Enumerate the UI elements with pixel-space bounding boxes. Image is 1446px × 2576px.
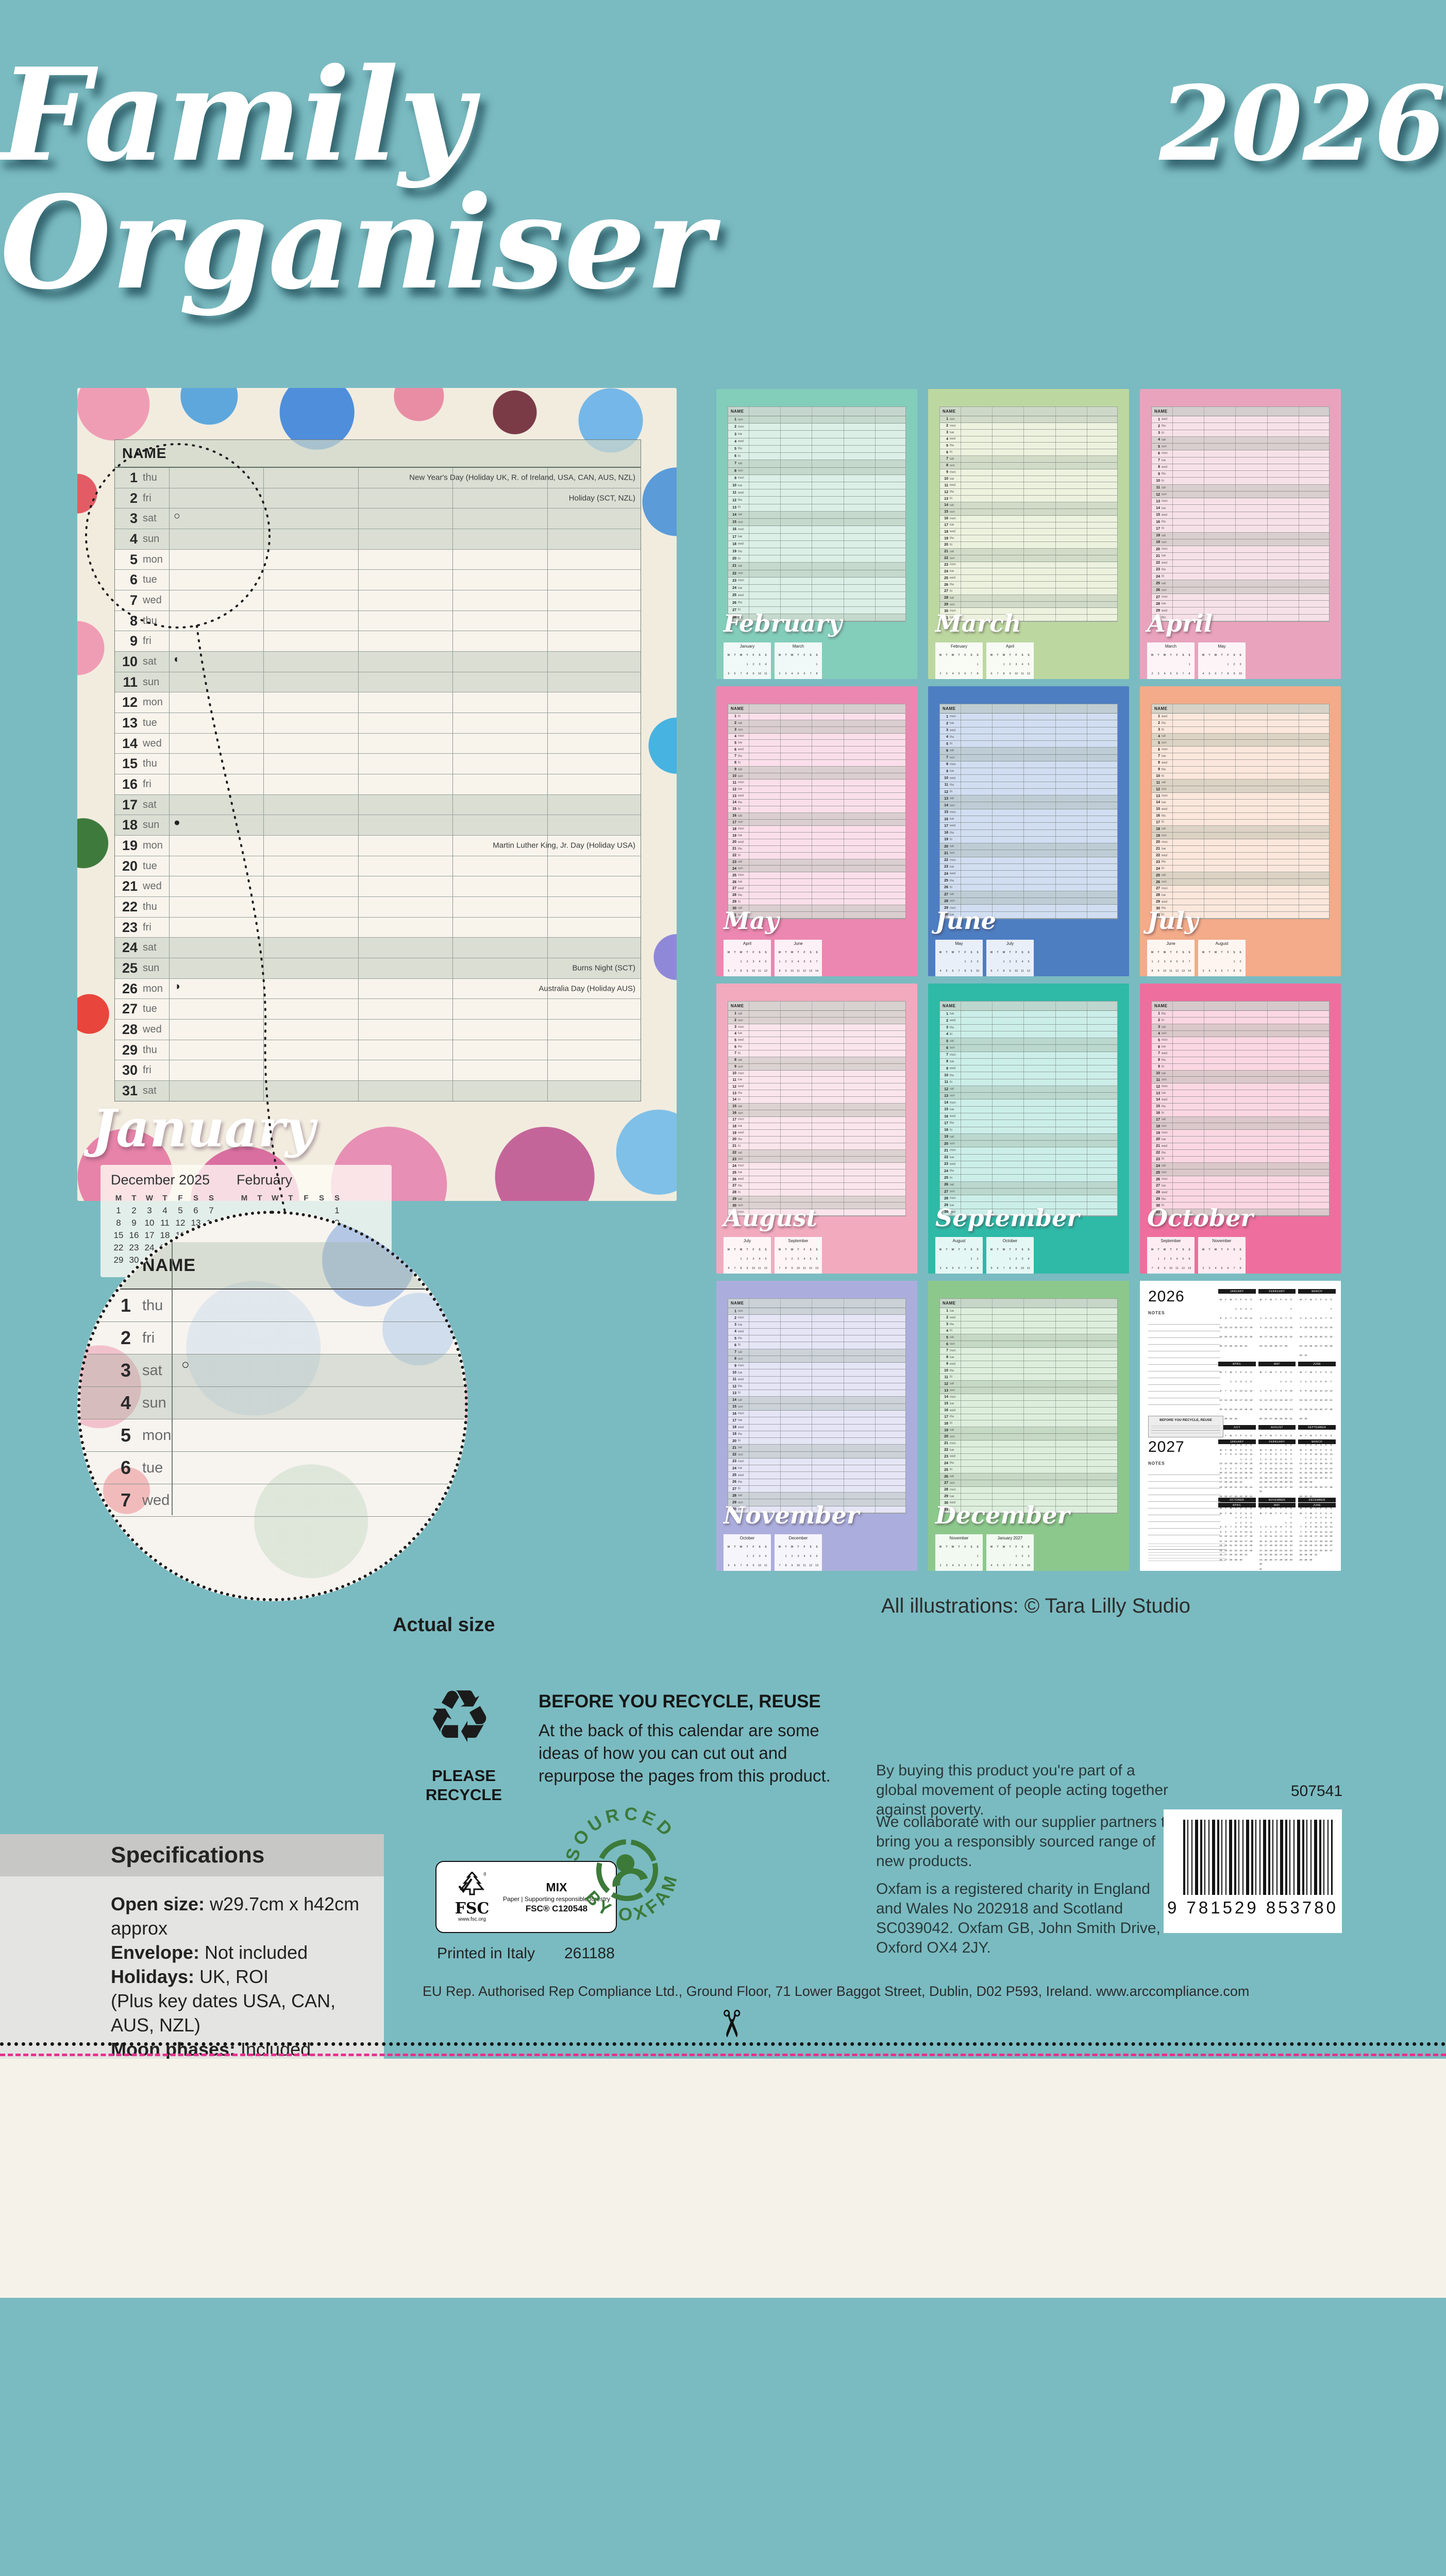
mini-calendar-week: 1 <box>937 658 981 668</box>
mini-calendar: JANUARYMTWTFSS12345678910111213141516171… <box>1218 1289 1256 1359</box>
thumbnail-day-row: 9fri <box>1152 1064 1329 1071</box>
day-number: 5 <box>115 552 138 568</box>
mini-calendar-weekday-row: MTWTFSS <box>777 649 820 658</box>
holiday-note: Burns Night (SCT) <box>572 964 635 973</box>
mini-calendar-weekday-row: MTWTFSS <box>726 946 769 956</box>
thumbnail-day-row: 29thu <box>1152 1196 1329 1203</box>
printed-in-label: Printed in Italy <box>437 1945 535 1962</box>
mini-calendar-week: 1234567 <box>1298 1453 1336 1463</box>
thumbnail-day-row: 9sun <box>728 1064 905 1071</box>
mini-calendar-week: 1234567 <box>111 1205 219 1217</box>
thumbnail-day-row: 10fri <box>1152 478 1329 484</box>
calendar-back-cover: { "title": {"main": "Family Organiser", … <box>0 0 1446 2298</box>
mini-calendar-weekday-row: MTWTFSS <box>1149 649 1192 658</box>
svg-text:SOURCED: SOURCED <box>552 1792 681 1867</box>
month-thumbnail: NAME1tue2wed3thu4fri5sat6sun7mon8tue9wed… <box>928 984 1129 1274</box>
thumbnail-day-row: 14sat <box>728 512 905 519</box>
mini-calendar-weekday-row: MTWTFSS <box>1218 1294 1256 1303</box>
mini-calendar-title: January <box>726 644 769 649</box>
mini-calendar-week: 9101112131415 <box>937 677 981 679</box>
thumbnail-day-row: 14wed <box>1152 1097 1329 1104</box>
mini-calendar-week: 123 <box>1258 1376 1296 1385</box>
thumbnail-day-row: 14mon <box>940 1394 1117 1401</box>
specification-line: Open size: w29.7cm x h42cm approx <box>111 1892 374 1940</box>
mini-calendar-week: 1234567 <box>1149 956 1192 965</box>
thumbnail-day-row: 23fri <box>1152 1157 1329 1163</box>
fsc-tree-icon: ® <box>458 1872 486 1899</box>
detail-day-rows: 1thu2fri3sat○4sun5mon6tue7wed <box>80 1290 465 1517</box>
day-number: 23 <box>115 920 138 936</box>
detail-day-row: 2fri <box>80 1322 465 1354</box>
thumbnail-day-row: 20fri <box>940 542 1117 549</box>
thumbnail-day-row: 6thu <box>728 1044 905 1050</box>
thumbnail-day-row: 1thu <box>1152 1011 1329 1018</box>
mini-calendar-week: 10111213141516 <box>1258 1535 1296 1545</box>
oxfam-statement-2: We collaborate with our supplier partner… <box>876 1812 1175 1871</box>
thumbnail-day-row: 25sun <box>1152 1170 1329 1176</box>
month-thumbnail: NAME1wed2thu3fri4sat5sun6mon7tue8wed9thu… <box>1140 686 1341 976</box>
thumbnail-day-row: 1sun <box>728 1308 905 1315</box>
thumbnail-day-row: 28fri <box>728 1190 905 1196</box>
mini-calendar-weekday-row: MTWTFSS <box>1149 946 1192 956</box>
detail-day-row: 5mon <box>80 1419 465 1452</box>
thumbnail-day-row: 19sun <box>1152 833 1329 839</box>
thumbnail-day-row: 8thu <box>1152 1057 1329 1064</box>
thumbnail-day-row: 20fri <box>728 1438 905 1445</box>
thumbnail-day-row: 22mon <box>940 857 1117 864</box>
day-number: 19 <box>115 838 138 854</box>
mini-calendar: NovemberMTWTFSS1234567891011121314151617… <box>935 1534 983 1571</box>
thumbnail-day-row: 9wed <box>940 1065 1117 1072</box>
mini-calendar-title: AUGUST <box>1258 1425 1296 1430</box>
recycle-note-box: BEFORE YOU RECYCLE, REUSE <box>1148 1416 1223 1437</box>
day-of-week: tue <box>142 1460 163 1477</box>
thumbnail-day-row: 15sun <box>940 509 1117 516</box>
thumbnail-day-row: 5sun <box>1152 444 1329 450</box>
mini-calendar-week: 13141516171819 <box>988 677 1032 679</box>
thumbnail-day-row: 7sun <box>940 755 1117 761</box>
mini-calendar-week: 12345 <box>988 658 1032 668</box>
thumbnail-day-row: 9tue <box>940 768 1117 775</box>
mini-calendar-week: 15161718192021 <box>1149 974 1192 976</box>
thumbnail-day-rows: 1sun2mon3tue4wed5thu6fri7sat8sun9mon10tu… <box>728 416 905 621</box>
thumbnail-day-row: 10tue <box>728 482 905 489</box>
thumbnail-day-row: 20fri <box>728 555 905 563</box>
thumbnail-day-row: 23sun <box>728 1157 905 1163</box>
mini-calendar: JanuaryMTWTFSS12345678910111213141516171… <box>724 642 771 679</box>
mini-calendar-weekday-row: MTWTFSS <box>1218 1430 1256 1439</box>
thumbnail-day-row: 25fri <box>940 1175 1117 1181</box>
day-of-week: fri <box>143 493 152 504</box>
scissors-icon: ✂ <box>712 2008 749 2039</box>
mini-calendar-title: April <box>726 941 769 946</box>
thumbnail-day-row: 6fri <box>728 1342 905 1349</box>
mini-calendar: MARCHMTWTFSS1234567891011121314151617181… <box>1298 1289 1336 1359</box>
mini-calendar-week: 45678910 <box>1218 1463 1256 1472</box>
mini-calendar-title: JUNE <box>1298 1362 1336 1366</box>
thumbnail-day-row: 18fri <box>940 1420 1117 1427</box>
mini-calendar-weekday-row: MTWTFSS <box>777 1541 820 1550</box>
mini-calendar-week: 3031 <box>1298 1349 1336 1359</box>
mini-calendar-title: November <box>1200 1239 1243 1243</box>
thumbnail-day-row: 20sat <box>940 843 1117 850</box>
day-of-week: thu <box>142 1297 163 1314</box>
thumbnail-day-row: 18fri <box>940 1127 1117 1134</box>
thumbnail-day-row: 24mon <box>728 1163 905 1170</box>
mini-months-2027: JANUARYMTWTFSS12345678910111213141516171… <box>1218 1439 1336 1571</box>
day-of-week: mon <box>143 697 163 708</box>
mini-calendar-week: 27282930 <box>1218 1413 1256 1422</box>
mini-calendar-week: 11121314151617 <box>1218 1472 1256 1481</box>
thumbnail-day-row: 8tue <box>940 1354 1117 1361</box>
mini-calendar-weekday-row: MTWTFSS <box>1298 1444 1336 1453</box>
thumbnail-day-row: 2wed <box>940 1315 1117 1321</box>
mini-calendar: MarchMTWTFSS1234567891011121314151617181… <box>775 642 822 679</box>
mini-calendar: AugustMTWTFSS123456789101112131415161718… <box>935 1237 983 1274</box>
thumbnail-day-row: 24sun <box>728 866 905 872</box>
thumbnail-day-row: 14fri <box>728 1097 905 1104</box>
mini-calendar: AprilMTWTFSS1234567891011121314151617181… <box>986 642 1034 679</box>
mini-calendar-week: 18192021222324 <box>1258 1403 1296 1413</box>
mini-calendar-week: 12345 <box>726 956 769 965</box>
specifications-box: Specifications Open size: w29.7cm x h42c… <box>0 1834 384 2076</box>
mini-calendar-week: 12131415161718 <box>1218 1321 1256 1331</box>
mini-calendar-week: 282930 <box>1298 1554 1336 1563</box>
mini-calendar: JuneMTWTFSS12345678910111213141516171819… <box>775 940 822 976</box>
mini-calendar-week: 2930 <box>1298 1413 1336 1422</box>
mini-calendar-weekday-row: MTWTFSS <box>237 1192 345 1205</box>
mini-calendar-week: 13141516171819 <box>726 1272 769 1274</box>
thumbnail-day-row: 13sun <box>940 1093 1117 1099</box>
moon-phase-icon: ● <box>174 817 180 829</box>
thumbnail-day-row: 6fri <box>728 453 905 460</box>
mini-calendar: JUNEMTWTFSS12345678910111213141516171819… <box>1298 1503 1336 1571</box>
mini-calendar-title: JULY <box>1218 1425 1256 1430</box>
thumbnail-day-row: 10thu <box>940 1368 1117 1375</box>
thumbnail-day-row: 12thu <box>728 497 905 504</box>
thumbnail-day-row: 19sat <box>940 1134 1117 1141</box>
thumbnail-day-row: 26thu <box>728 599 905 606</box>
day-of-week: fri <box>143 635 152 647</box>
thumbnail-day-row: 7tue <box>1152 753 1329 760</box>
thumbnail-day-row: 12sun <box>1152 492 1329 498</box>
thumbnail-day-row: 29fri <box>728 899 905 906</box>
mini-calendar-week: 23242526272829 <box>1298 1340 1336 1349</box>
day-number: 21 <box>115 878 138 894</box>
thumbnail-day-row: 18thu <box>940 830 1117 837</box>
mini-calendar-week: 9101112131415 <box>777 677 820 679</box>
thumbnail-day-row: 1tue <box>940 1011 1117 1018</box>
mini-calendar: FebruaryMTWTFSS1234567891011121314151617… <box>935 642 983 679</box>
calendar-day-row: 8thu <box>115 611 641 632</box>
mini-calendar-week: 123 <box>1200 658 1243 668</box>
mini-calendar-week: 16171819202122 <box>1298 1331 1336 1340</box>
day-of-week: sat <box>143 513 157 524</box>
thumbnail-day-row: 11sat <box>1152 485 1329 492</box>
thumbnail-name-header: NAME <box>728 704 905 714</box>
thumbnail-day-row: 15tue <box>940 1107 1117 1113</box>
thumbnail-day-row: 29sun <box>940 602 1117 608</box>
thumbnail-day-row: 4sat <box>1152 437 1329 444</box>
thumbnail-calendar-area: NAME1thu2fri3sat4sun5mon6tue7wed8thu9fri… <box>1151 1001 1330 1216</box>
mini-calendar-title: November <box>937 1536 981 1540</box>
thumbnail-day-row: 7sat <box>940 456 1117 463</box>
thumbnail-day-row: 16sat <box>728 813 905 820</box>
mini-calendar-week: 13141516171819 <box>1218 1394 1256 1403</box>
thumbnail-day-row: 27wed <box>728 886 905 892</box>
mini-calendar-week: 891011121314 <box>1258 1463 1296 1472</box>
thumbnail-name-header: NAME <box>1152 407 1329 416</box>
thumbnail-day-row: 27fri <box>728 1486 905 1493</box>
mini-calendar-week: 1234 <box>1218 1303 1256 1312</box>
mini-calendar-weekday-row: MTWTFSS <box>1258 1294 1296 1303</box>
mini-calendar: JANUARYMTWTFSS12345678910111213141516171… <box>1218 1439 1256 1500</box>
mini-calendar-weekday-row: MTWTFSS <box>1218 1366 1256 1376</box>
thumbnail-day-row: 29wed <box>1152 899 1329 906</box>
thumbnail-day-row: 12thu <box>940 489 1117 496</box>
day-number: 3 <box>80 1360 131 1381</box>
thumbnail-day-row: 10thu <box>940 1072 1117 1079</box>
thumbnail-day-row: 13sat <box>940 795 1117 802</box>
thumbnail-day-row: 14thu <box>728 800 905 806</box>
mini-calendar-weekday-row: MTWTFSS <box>988 1244 1032 1253</box>
mini-calendar-week: 25262728293031 <box>1258 1413 1296 1422</box>
eu-rep-line: EU Rep. Authorised Rep Compliance Ltd., … <box>423 1984 1249 1999</box>
thumbnail-day-row: 6wed <box>728 747 905 753</box>
day-number: 5 <box>80 1425 131 1446</box>
year-planner-footnote-lines <box>1148 1541 1225 1563</box>
thumbnail-day-row: 14sat <box>940 502 1117 509</box>
mini-calendar-weekday-row: MTWTFSS <box>937 1244 981 1253</box>
day-of-week: sun <box>143 676 159 688</box>
thumbnail-day-row: 20sun <box>940 1141 1117 1147</box>
thumbnail-day-row: 19mon <box>1152 1130 1329 1137</box>
thumbnail-day-row: 1wed <box>1152 714 1329 720</box>
mini-calendar: FEBRUARYMTWTFSS1234567891011121314151617… <box>1258 1289 1296 1359</box>
mini-calendar-week: 891011121314 <box>1298 1385 1336 1394</box>
thumbnail-day-row: 21wed <box>1152 1143 1329 1150</box>
thumbnail-day-row: 17tue <box>728 534 905 541</box>
mini-calendar: MAYMTWTFSS123456789101112131415161718192… <box>1258 1362 1296 1422</box>
thumbnail-day-row: 23thu <box>1152 567 1329 573</box>
thumbnail-day-row: 14tue <box>1152 505 1329 512</box>
calendar-day-row: 7wed <box>115 590 641 611</box>
moon-phase-icon: ○ <box>181 1357 190 1372</box>
thumbnail-day-row: 25mon <box>728 872 905 879</box>
title-year: 2026 <box>1159 73 1446 176</box>
thumbnail-day-row: 22sun <box>728 570 905 578</box>
thumbnail-day-row: 8sun <box>728 1356 905 1363</box>
svg-text:®: ® <box>483 1872 486 1877</box>
thumbnail-day-row: 17wed <box>940 823 1117 829</box>
thumbnail-day-row: 8sat <box>728 1057 905 1064</box>
mini-calendar-week: 11121314151617 <box>988 1569 1032 1571</box>
thumbnail-day-row: 25wed <box>728 1472 905 1479</box>
thumbnail-day-row: 24fri <box>1152 573 1329 580</box>
mini-calendar-weekday-row: MTWTFSS <box>988 649 1032 658</box>
thumbnail-day-row: 1tue <box>940 1308 1117 1315</box>
thumbnail-day-row: 24tue <box>728 585 905 592</box>
mini-calendar-title: July <box>988 941 1032 946</box>
mini-calendar-weekday-row: MTWTFSS <box>988 946 1032 956</box>
mini-calendar-week: 22232425262728 <box>1298 1403 1336 1413</box>
detail-day-row: 4sun <box>80 1387 465 1419</box>
day-of-week: sun <box>142 1395 166 1412</box>
calendar-day-row: 14wed <box>115 734 641 754</box>
thumbnail-day-rows: 1thu2fri3sat4sun5mon6tue7wed8thu9fri10sa… <box>1152 1011 1329 1216</box>
thumbnail-day-row: 11wed <box>728 1377 905 1383</box>
day-number: 26 <box>115 981 138 997</box>
day-of-week: thu <box>143 615 157 627</box>
mini-calendar-week: 293031 <box>1298 1490 1336 1500</box>
thumbnail-day-row: 1fri <box>728 714 905 720</box>
thumbnail-day-row: 5mon <box>1152 1037 1329 1044</box>
spec-value: Not included <box>205 1942 308 1963</box>
mini-calendar-week: 12131415161718 <box>988 1272 1032 1274</box>
mini-calendar: OctoberMTWTFSS12345678910111213141516171… <box>986 1237 1034 1274</box>
thumbnail-month-label: April <box>1147 612 1213 635</box>
fold-dashed-line <box>0 2054 1446 2056</box>
thumbnail-day-row: 17tue <box>940 522 1117 529</box>
thumbnail-day-row: 7tue <box>1152 457 1329 464</box>
thumbnail-day-row: 2thu <box>1152 423 1329 430</box>
calendar-day-row: 13tue <box>115 713 641 734</box>
thumbnail-month-label: December <box>935 1503 1070 1527</box>
mini-calendar-week: 9101112131415 <box>1298 1321 1336 1331</box>
calendar-day-row: 25sunBurns Night (SCT) <box>115 958 641 979</box>
thumbnail-day-row: 26fri <box>940 885 1117 891</box>
mini-calendar-weekday-row: MTWTFSS <box>1298 1430 1336 1439</box>
thumbnail-day-row: 12sat <box>940 1086 1117 1093</box>
thumbnail-day-row: 13wed <box>728 793 905 800</box>
mini-calendar-title: MAY <box>1258 1503 1296 1507</box>
mini-calendar-week: 11121314151617 <box>1258 1394 1296 1403</box>
mini-calendar-weekday-row: MTWTFSS <box>1298 1507 1336 1517</box>
thumbnail-day-row: 29sat <box>728 1196 905 1203</box>
thumbnail-day-row: 3sun <box>728 727 905 734</box>
day-of-week: wed <box>143 880 162 892</box>
thumbnail-day-row: 6mon <box>1152 747 1329 753</box>
barcode-digits: 9 781529 853780 <box>1164 1898 1342 1918</box>
mini-calendar-week: 3456789 <box>937 1262 981 1272</box>
mini-calendar-week: 9101112131415 <box>1258 1321 1296 1331</box>
thumbnail-name-header: NAME <box>728 1002 905 1011</box>
fsc-logo: ® FSC www.fsc.org <box>442 1872 502 1922</box>
thumbnail-day-row: 13fri <box>940 496 1117 502</box>
thumbnail-day-row: 23wed <box>940 1161 1117 1168</box>
thumbnail-day-row: 2fri <box>1152 1018 1329 1024</box>
mini-calendar-weekday-row: MTWTFSS <box>777 946 820 956</box>
thumbnail-day-row: 11thu <box>940 782 1117 789</box>
thumbnail-day-row: 4wed <box>940 436 1117 443</box>
thumbnail-day-row: 18wed <box>940 529 1117 535</box>
spec-label: Envelope: <box>111 1942 205 1963</box>
day-number: 18 <box>115 817 138 833</box>
thumbnail-day-row: 27tue <box>1152 1183 1329 1190</box>
mini-calendar-week: 123 <box>1218 1453 1256 1463</box>
calendar-day-row: 24sat <box>115 938 641 958</box>
mini-calendar-title: MARCH <box>1298 1289 1336 1294</box>
thumbnail-day-row: 4fri <box>940 1328 1117 1335</box>
mini-calendar-weekday-row: MTWTFSS <box>937 649 981 658</box>
flap-area <box>0 2059 1446 2298</box>
thumbnail-day-row: 6mon <box>1152 450 1329 457</box>
calendar-day-row: 27tue <box>115 999 641 1020</box>
day-number: 9 <box>115 633 138 649</box>
thumbnail-month-label: May <box>724 909 779 933</box>
thumbnail-day-row: 25wed <box>940 575 1117 582</box>
calendar-day-row: 3sat○ <box>115 509 641 529</box>
moon-phase-icon: ○ <box>174 510 180 522</box>
day-of-week: fri <box>142 1330 155 1347</box>
thumbnail-mini-calendars: NovemberMTWTFSS1234567891011121314151617… <box>935 1534 1034 1571</box>
calendar-day-row: 5mon <box>115 550 641 570</box>
thumbnail-day-row: 18sat <box>1152 533 1329 539</box>
mini-calendar-week: 1234 <box>726 658 769 668</box>
mini-calendar-week: 123456 <box>777 1253 820 1262</box>
thumbnail-day-rows: 1tue2wed3thu4fri5sat6sun7mon8tue9wed10th… <box>940 1011 1117 1216</box>
mini-calendar-week: 18192021222324 <box>1218 1481 1256 1490</box>
day-number: 10 <box>115 654 138 670</box>
thumbnail-day-row: 9mon <box>940 469 1117 476</box>
detail-day-row: 3sat○ <box>80 1354 465 1387</box>
thumbnail-day-row: 22tue <box>940 1155 1117 1161</box>
mini-calendar-week: 1234 <box>1218 1517 1256 1526</box>
thumbnail-calendar-area: NAME1sun2mon3tue4wed5thu6fri7sat8sun9mon… <box>728 1298 906 1514</box>
thumbnail-day-row: 13sun <box>940 1387 1117 1394</box>
day-of-week: sun <box>143 819 159 831</box>
detail-table: NAME 1thu2fri3sat○4sun5mon6tue7wed <box>80 1242 465 1517</box>
thumbnail-day-row: 1sun <box>940 416 1117 423</box>
mini-calendar: AprilMTWTFSS1234567891011121314151617181… <box>724 940 771 976</box>
mini-calendar-week: 78910111213 <box>1149 1262 1192 1272</box>
calendar-day-row: 11sun <box>115 672 641 693</box>
thumbnail-day-row: 4sun <box>1152 1031 1329 1038</box>
thumbnail-day-row: 5thu <box>728 1335 905 1342</box>
thumbnail-day-row: 26thu <box>940 582 1117 588</box>
thumbnail-day-row: 6sun <box>940 1045 1117 1052</box>
detail-column-divider <box>172 1242 173 1515</box>
mini-calendar-week: 123456 <box>1298 1517 1336 1526</box>
thumbnail-day-rows: 1sun2mon3tue4wed5thu6fri7sat8sun9mon10tu… <box>940 416 1117 621</box>
spec-value: UK, ROI <box>199 1966 268 1987</box>
thumbnail-day-row: 8wed <box>1152 760 1329 767</box>
thumbnail-day-row: 26sat <box>940 1473 1117 1480</box>
thumbnail-day-row: 21mon <box>940 1147 1117 1154</box>
mini-calendar-week: 45678910 <box>937 965 981 974</box>
mini-calendar-week: 567891011 <box>726 1560 769 1569</box>
thumbnail-day-row: 19sat <box>940 1427 1117 1434</box>
thumbnail-day-row: 14sat <box>728 1397 905 1403</box>
day-of-week: tue <box>143 860 157 872</box>
thumbnail-day-row: 12fri <box>940 789 1117 795</box>
thumbnail-mini-calendars: MayMTWTFSS123456789101112131415161718192… <box>935 940 1034 976</box>
thumbnail-day-row: 22sun <box>940 555 1117 562</box>
thumbnail-calendar-area: NAME1tue2wed3thu4fri5sat6sun7mon8tue9wed… <box>939 1298 1118 1514</box>
thumbnail-day-row: 18sun <box>1152 1123 1329 1130</box>
day-of-week: sat <box>143 1085 157 1097</box>
mini-calendar-week: 2345678 <box>937 1560 981 1569</box>
mini-calendar-week: 1234 <box>988 1253 1032 1262</box>
thumbnail-day-row: 16thu <box>1152 813 1329 820</box>
barcode-bars <box>1183 1820 1333 1895</box>
oxfam-charity-info: Oxfam is a registered charity in England… <box>876 1879 1175 1958</box>
thumbnail-day-row: 11mon <box>728 779 905 786</box>
thumbnail-day-row: 27mon <box>1152 886 1329 892</box>
mini-calendar: NovemberMTWTFSS1234567891011121314151617… <box>1198 1237 1246 1274</box>
mini-calendar: MARCHMTWTFSS1234567891011121314151617181… <box>1298 1439 1336 1500</box>
day-number: 30 <box>115 1062 138 1078</box>
